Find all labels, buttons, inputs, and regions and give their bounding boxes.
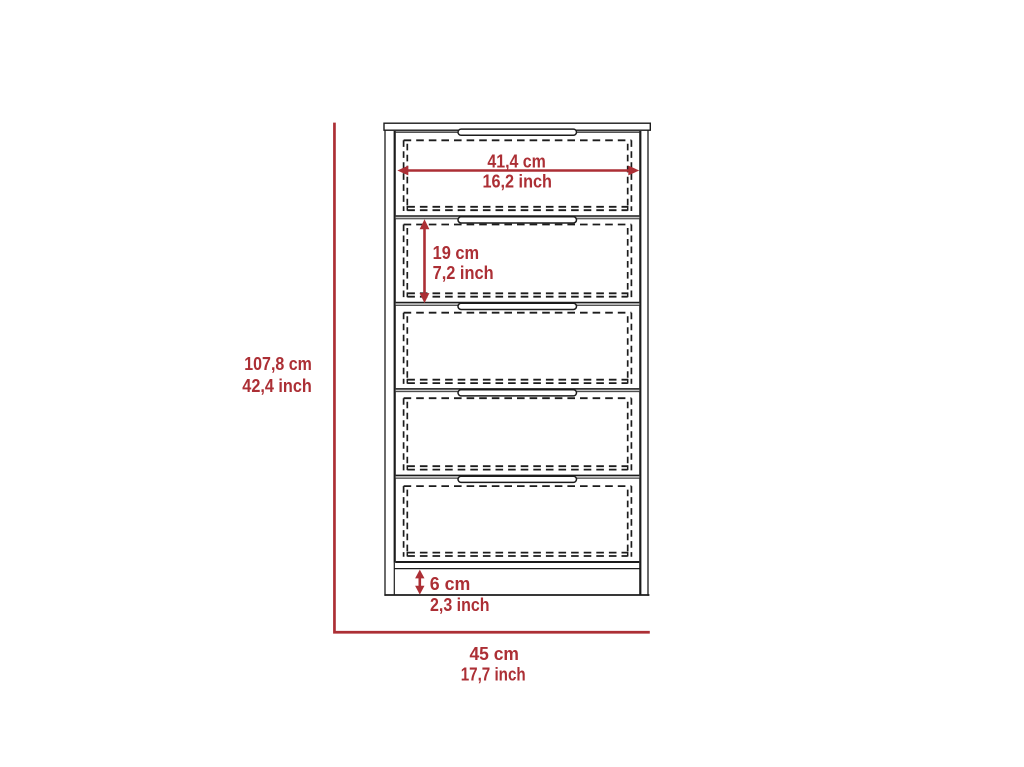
- svg-text:17,7 inch: 17,7 inch: [461, 664, 526, 685]
- svg-text:42,4 inch: 42,4 inch: [242, 375, 312, 396]
- svg-text:6 cm: 6 cm: [430, 573, 471, 594]
- svg-text:41,4 cm: 41,4 cm: [487, 150, 546, 171]
- svg-text:19 cm: 19 cm: [433, 242, 480, 263]
- svg-text:16,2 inch: 16,2 inch: [482, 171, 552, 192]
- svg-text:107,8 cm: 107,8 cm: [244, 353, 312, 374]
- svg-text:7,2 inch: 7,2 inch: [433, 262, 494, 283]
- svg-text:2,3 inch: 2,3 inch: [430, 594, 490, 615]
- svg-text:45 cm: 45 cm: [469, 643, 519, 664]
